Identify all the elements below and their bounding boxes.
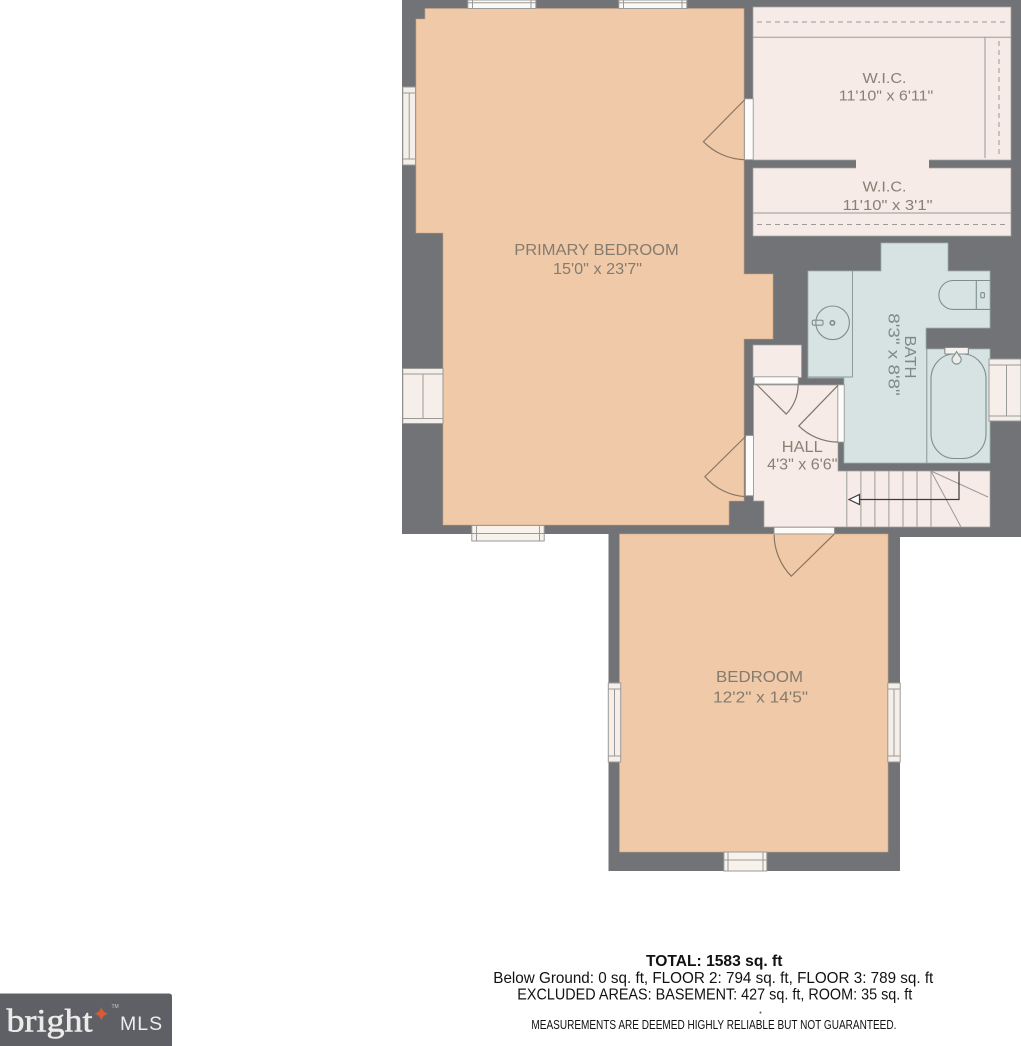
svg-text:MEASUREMENTS ARE DEEMED HIGHLY: MEASUREMENTS ARE DEEMED HIGHLY RELIABLE …: [531, 1018, 896, 1032]
svg-text:bright: bright: [7, 1004, 93, 1040]
svg-text:11'10" x 6'11": 11'10" x 6'11": [839, 88, 934, 105]
svg-text:MLS: MLS: [120, 1013, 163, 1035]
svg-text:11'10" x 3'1": 11'10" x 3'1": [843, 197, 933, 214]
svg-text:8'3" x 8'8": 8'3" x 8'8": [885, 313, 902, 396]
svg-text:W.I.C.: W.I.C.: [863, 179, 907, 196]
svg-text:W.I.C.: W.I.C.: [863, 70, 907, 87]
svg-text:Below Ground: 0 sq. ft, FLOOR: Below Ground: 0 sq. ft, FLOOR 2: 794 sq.…: [493, 970, 934, 987]
svg-text:4'3" x 6'6": 4'3" x 6'6": [767, 457, 837, 474]
svg-text:12'2" x 14'5": 12'2" x 14'5": [713, 690, 808, 707]
svg-text:BATH: BATH: [901, 336, 918, 379]
svg-text:BEDROOM: BEDROOM: [716, 669, 803, 686]
svg-text:HALL: HALL: [782, 439, 823, 456]
svg-text:PRIMARY BEDROOM: PRIMARY BEDROOM: [514, 242, 679, 259]
svg-text:EXCLUDED AREAS: BASEMENT: 427: EXCLUDED AREAS: BASEMENT: 427 sq. ft, RO…: [517, 987, 912, 1004]
svg-text:TM: TM: [112, 1004, 119, 1010]
svg-text:TOTAL: 1583 sq. ft: TOTAL: 1583 sq. ft: [646, 953, 783, 970]
svg-text:15'0" x 23'7": 15'0" x 23'7": [553, 261, 642, 278]
